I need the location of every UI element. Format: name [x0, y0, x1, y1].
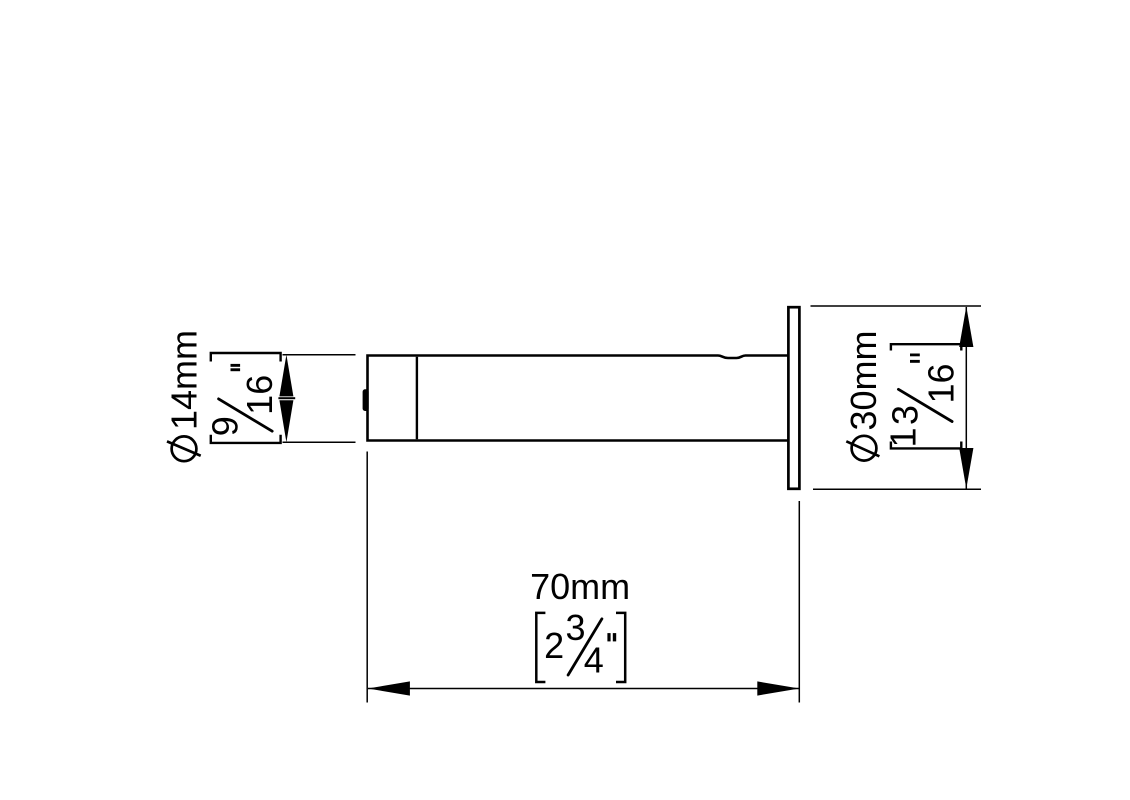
svg-text:14mm: 14mm [163, 330, 204, 430]
svg-text:1: 1 [882, 427, 923, 447]
svg-text:16: 16 [920, 363, 961, 403]
svg-text:3: 3 [565, 607, 585, 648]
svg-text:30mm: 30mm [843, 330, 884, 430]
svg-text:70mm: 70mm [530, 566, 630, 607]
svg-text:9: 9 [205, 416, 246, 436]
svg-text:3: 3 [884, 405, 925, 425]
svg-text:2: 2 [544, 625, 564, 666]
svg-text:16: 16 [239, 375, 280, 415]
svg-text:4: 4 [584, 640, 604, 681]
